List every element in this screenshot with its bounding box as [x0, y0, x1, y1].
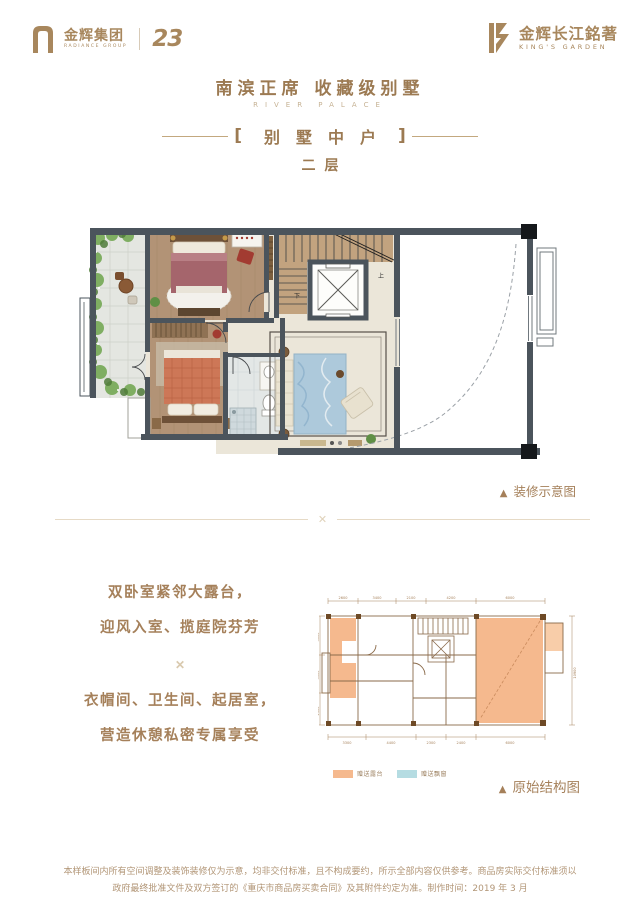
tv-console	[178, 308, 220, 316]
feature-copy: 双卧室紧邻大露台， 迎风入室、揽庭院芬芳 ✕ 衣帽间、卫生间、起居室， 营造休憩…	[40, 583, 320, 746]
feature-ornament-icon: ✕	[40, 654, 320, 676]
elevator-icon	[310, 262, 366, 318]
legend-item-baywindow: 赠送飘窗	[397, 769, 447, 778]
svg-text:4200: 4200	[447, 596, 456, 600]
stair-down-label: 下	[294, 293, 300, 300]
svg-text:2600: 2600	[339, 596, 348, 600]
feature-line-4: 营造休憩私密专属享受	[40, 726, 320, 746]
decorated-floor-plan: 上 下	[78, 222, 562, 464]
walk-in-closet	[152, 322, 208, 338]
feature-line-1: 双卧室紧邻大露台，	[40, 583, 320, 603]
floor-label: 二层	[0, 155, 640, 175]
brand-right-cn: 金辉长江銘著	[519, 25, 618, 43]
svg-text:3600: 3600	[318, 633, 320, 642]
plant-icon	[366, 434, 376, 444]
svg-text:2400: 2400	[457, 741, 466, 745]
brochure-page: 金辉集团 RADIANCE GROUP 23 金辉长江銘著 KING'S GAR…	[0, 0, 640, 920]
svg-text:2900: 2900	[318, 707, 320, 716]
svg-text:3400: 3400	[373, 596, 382, 600]
svg-text:2100: 2100	[407, 596, 416, 600]
brand-logo-left: 金辉集团 RADIANCE GROUP 23	[30, 24, 182, 54]
structural-floor-plan: 2600 3400 2100 4200 6000 3300 4400 2300 …	[318, 593, 588, 763]
radiance-group-icon	[30, 24, 56, 54]
structural-legend: 赠送露台 赠送飘窗	[333, 769, 447, 778]
bed-headboard	[170, 234, 228, 242]
section-divider: ✕	[55, 519, 590, 520]
kings-garden-icon	[487, 22, 512, 54]
divider-ornament-icon: ✕	[318, 513, 327, 526]
dresser	[232, 234, 262, 247]
page-subtitle-en: RIVER PALACE	[0, 101, 640, 109]
feature-line-3: 衣帽间、卫生间、起居室，	[40, 691, 320, 711]
triangle-icon: ▲	[500, 488, 508, 499]
rule-left	[162, 136, 228, 137]
toilet	[263, 395, 275, 411]
nightstand	[152, 418, 161, 429]
disclaimer-line-2: 政府最终批准文件及双方签订的《重庆市商品房买卖合同》及其附件约定为准。制作时间：…	[20, 881, 620, 898]
disclaimer-line-1: 本样板间内所有空间调整及装饰装修仅为示意，均非交付标准，且不构成要约，所示全部内…	[20, 864, 620, 881]
unit-title-row: [ 别墅中户 ]	[0, 124, 640, 148]
feature-line-2: 迎风入室、揽庭院芬芳	[40, 618, 320, 638]
console	[300, 440, 326, 446]
logo-separator	[139, 28, 140, 50]
bracket-close: ]	[398, 126, 406, 146]
svg-text:3300: 3300	[318, 671, 320, 680]
stair-up-label: 上	[378, 272, 384, 280]
brand-left-en: RADIANCE GROUP	[64, 44, 127, 50]
triangle-icon: ▲	[499, 784, 507, 795]
unit-title: 别墅中户	[248, 124, 392, 148]
stool	[213, 330, 222, 339]
orange-swatch	[333, 770, 353, 778]
bracket-open: [	[234, 126, 242, 146]
rule-right	[412, 136, 478, 137]
brand-logo-right: 金辉长江銘著 KING'S GARDEN	[487, 22, 618, 54]
brand-left-cn: 金辉集团	[64, 29, 127, 44]
legend-item-gifted: 赠送露台	[333, 769, 383, 778]
page-title: 南滨正席 收藏级别墅	[0, 74, 640, 99]
svg-text:3300: 3300	[343, 741, 352, 745]
coffee-table	[336, 370, 344, 378]
decorated-plan-caption: ▲装修示意图	[420, 481, 576, 500]
svg-text:4400: 4400	[387, 741, 396, 745]
plant-icon	[150, 297, 160, 307]
terrace-chair	[115, 272, 124, 280]
svg-text:6000: 6000	[506, 741, 515, 745]
terrace-table	[119, 279, 133, 293]
structural-plan-caption: ▲原始结构图	[456, 776, 580, 796]
disclaimer: 本样板间内所有空间调整及装饰装修仅为示意，均非交付标准，且不构成要约，所示全部内…	[20, 864, 620, 898]
anniversary-23: 23	[152, 26, 182, 52]
blue-swatch	[397, 770, 417, 778]
svg-text:10900: 10900	[573, 667, 577, 678]
svg-text:6000: 6000	[506, 596, 515, 600]
svg-text:2300: 2300	[427, 741, 436, 745]
brand-right-en: KING'S GARDEN	[519, 43, 618, 52]
